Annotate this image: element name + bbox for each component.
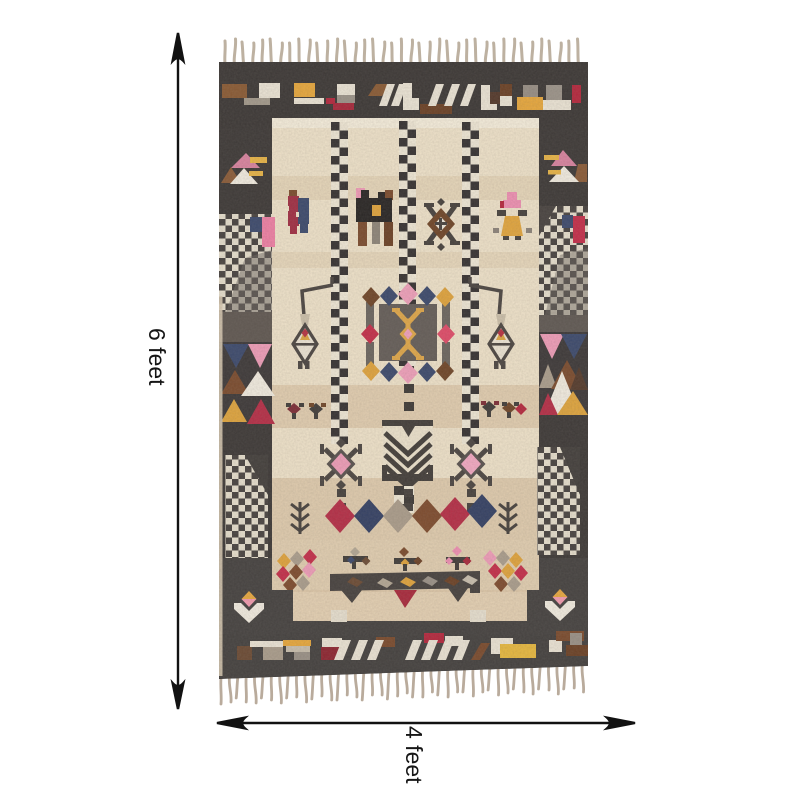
svg-text:4 feet: 4 feet bbox=[401, 726, 427, 784]
svg-text:6 feet: 6 feet bbox=[144, 328, 170, 386]
